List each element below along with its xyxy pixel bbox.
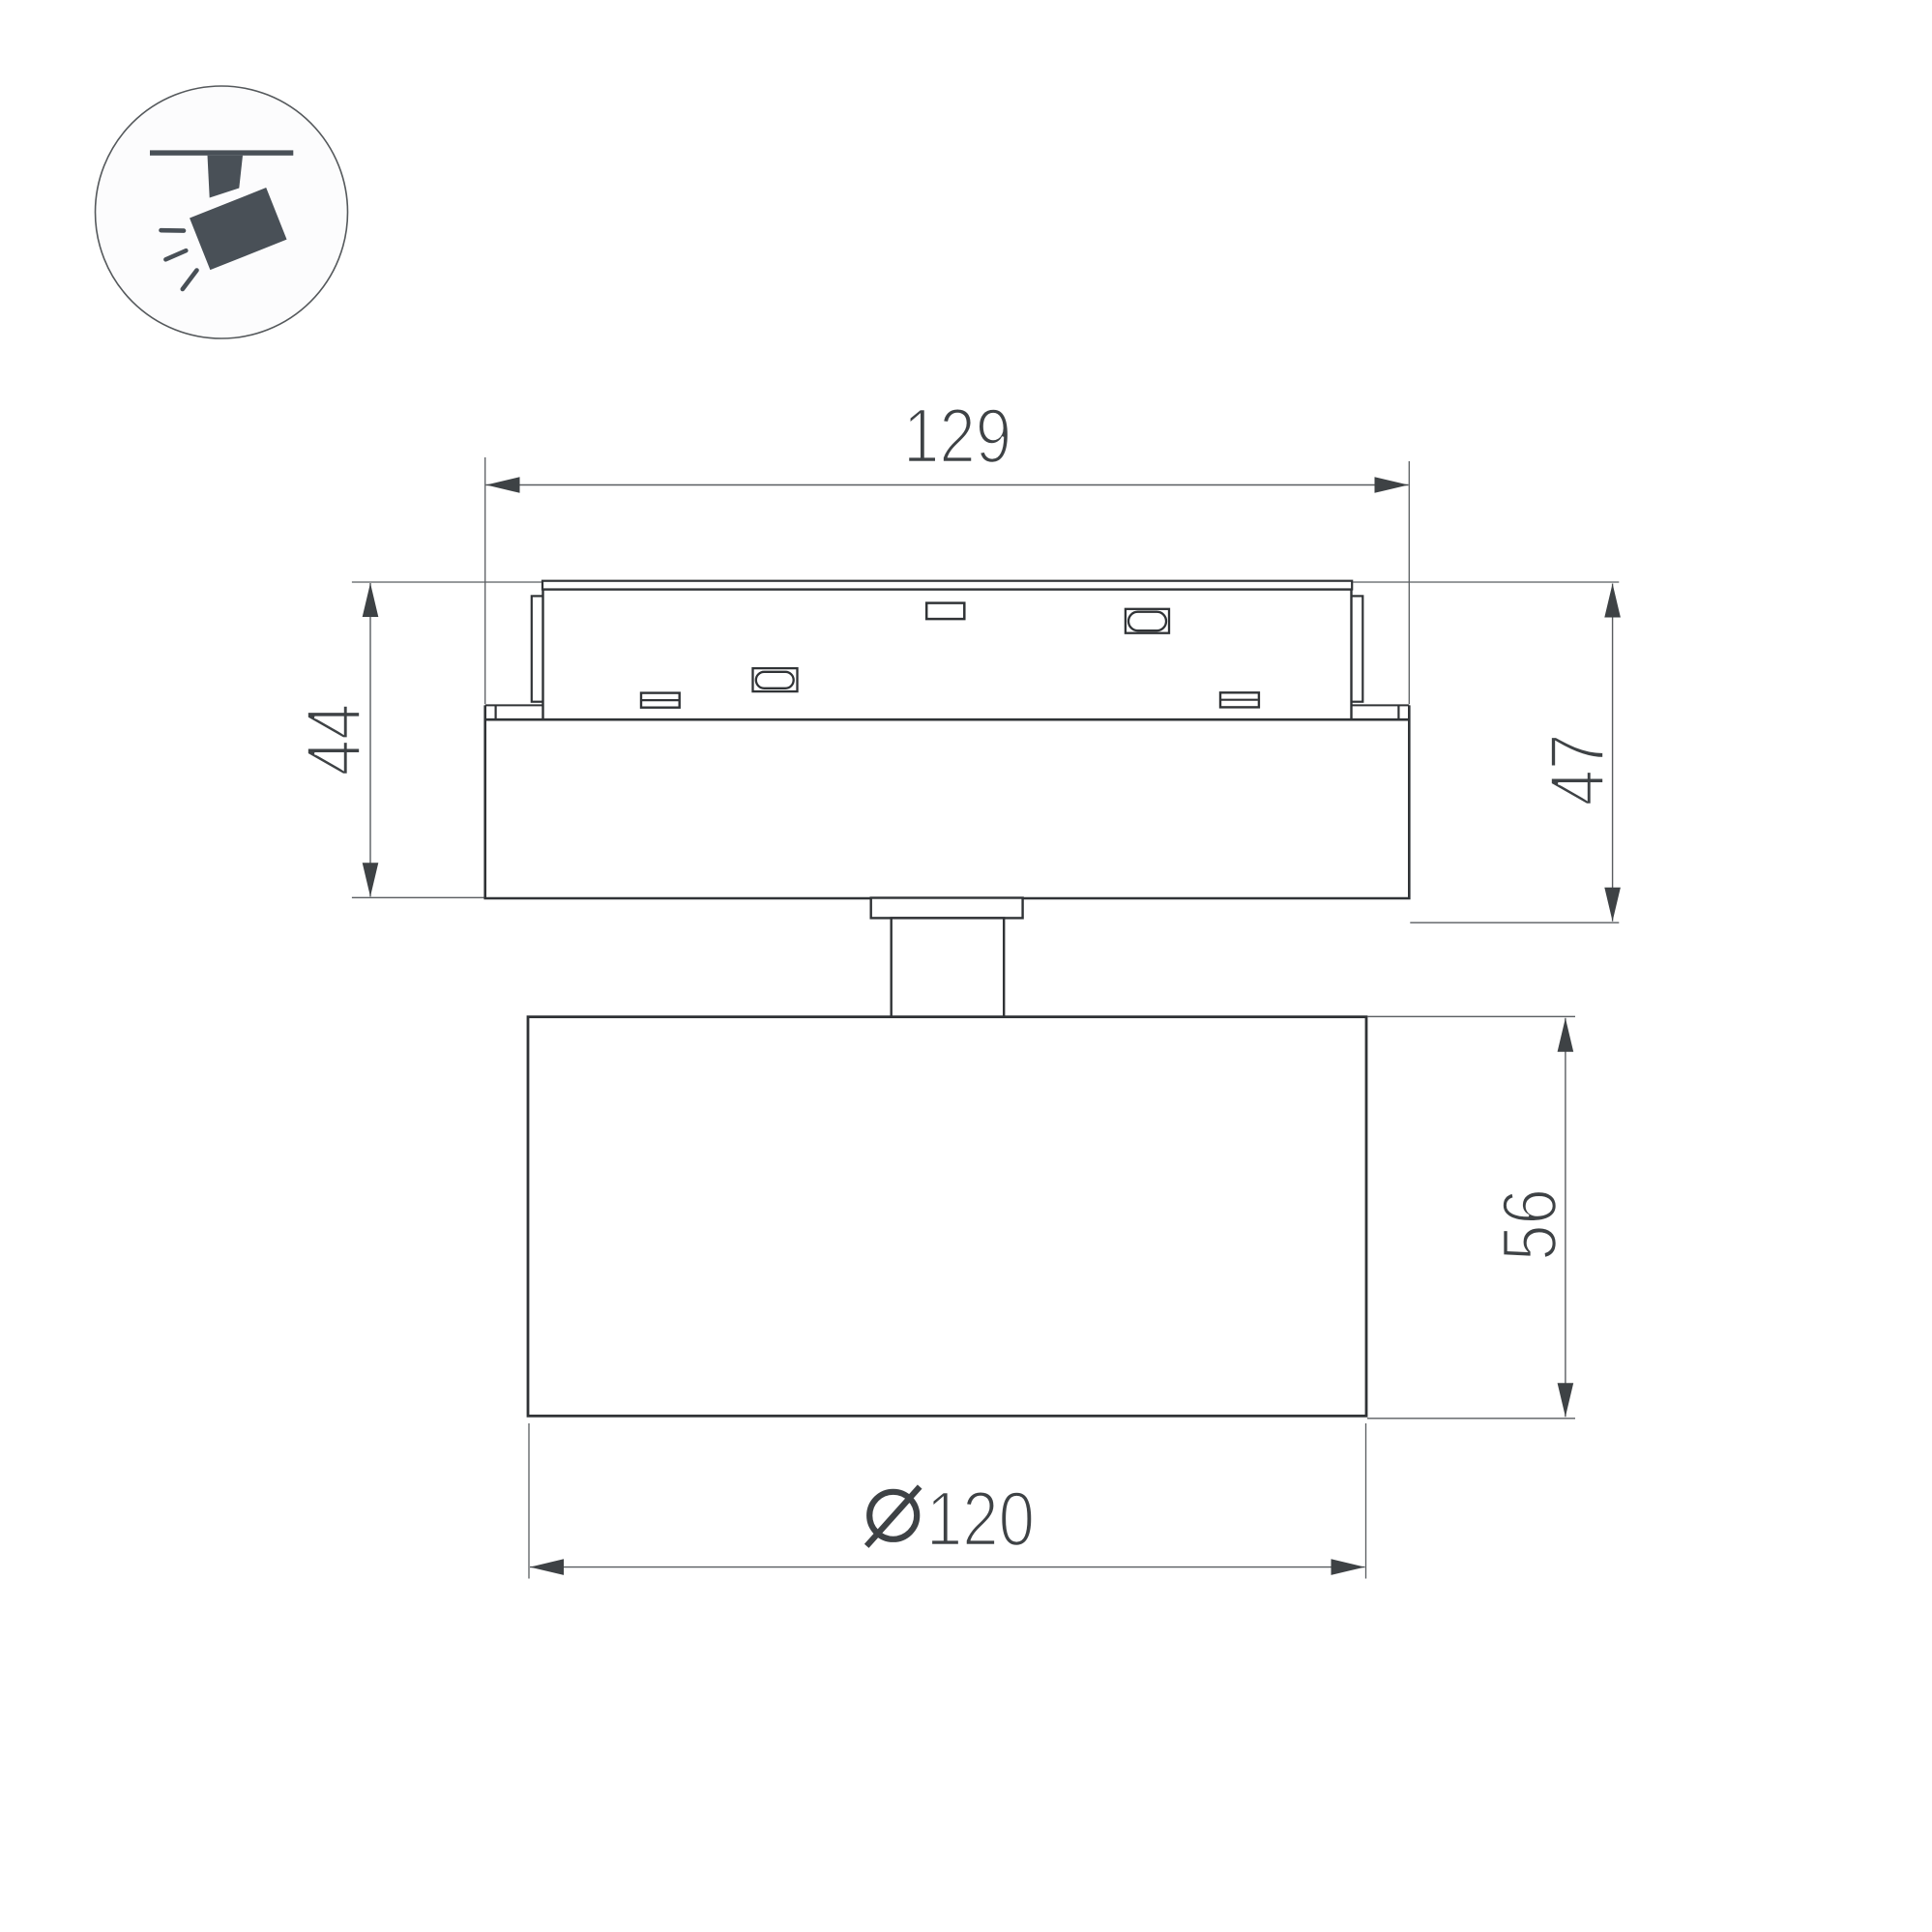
- svg-text:47: 47: [1534, 734, 1621, 806]
- svg-text:44: 44: [290, 704, 377, 776]
- svg-text:129: 129: [903, 392, 1011, 479]
- svg-text:120: 120: [926, 1476, 1035, 1563]
- svg-text:56: 56: [1485, 1188, 1572, 1261]
